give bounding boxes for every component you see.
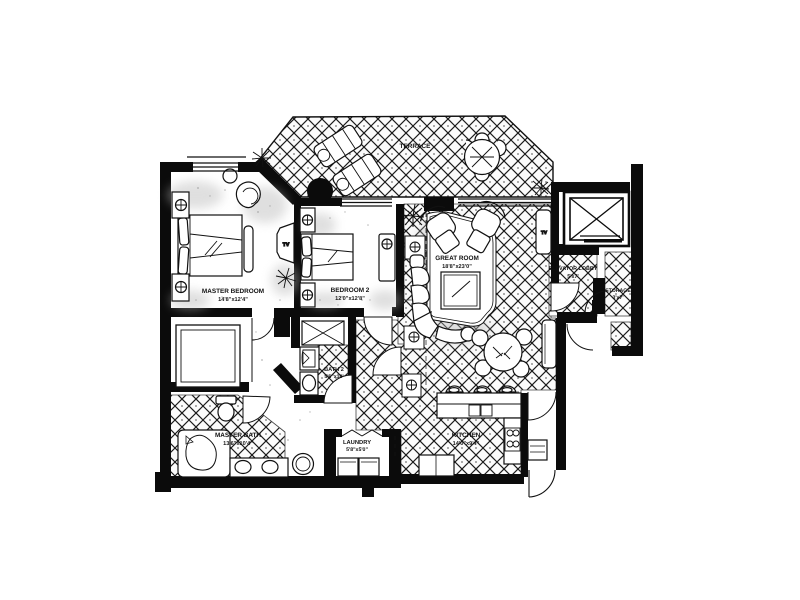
svg-text:14'8"x12'4": 14'8"x12'4" [218,297,248,303]
svg-text:MASTER BATH: MASTER BATH [215,432,261,439]
svg-text:5'8"x5'0": 5'8"x5'0" [346,447,368,453]
svg-text:TV: TV [541,230,548,235]
svg-text:KITCHEN: KITCHEN [452,432,481,439]
svg-text:5'6"x10': 5'6"x10' [324,374,343,380]
svg-text:LAUNDRY: LAUNDRY [343,440,371,446]
svg-text:14'0"x9'4": 14'0"x9'4" [453,441,480,447]
svg-text:TERRACE: TERRACE [400,143,432,150]
svg-text:ELEVATOR LOBBY: ELEVATOR LOBBY [549,266,598,272]
svg-text:13'6"x10'4": 13'6"x10'4" [223,441,253,447]
svg-text:STORAGE: STORAGE [605,288,631,294]
svg-text:BATH 2: BATH 2 [324,367,344,373]
svg-text:5'x7': 5'x7' [567,274,579,280]
svg-text:BEDROOM 2: BEDROOM 2 [331,287,370,294]
svg-text:12'0"x12'8": 12'0"x12'8" [335,296,365,302]
svg-text:GREAT ROOM: GREAT ROOM [435,255,479,262]
svg-text:MASTER BEDROOM: MASTER BEDROOM [202,288,264,295]
svg-text:18'8"x23'0": 18'8"x23'0" [442,264,472,270]
svg-text:TV: TV [283,242,290,248]
svg-text:3'x7': 3'x7' [612,295,623,301]
